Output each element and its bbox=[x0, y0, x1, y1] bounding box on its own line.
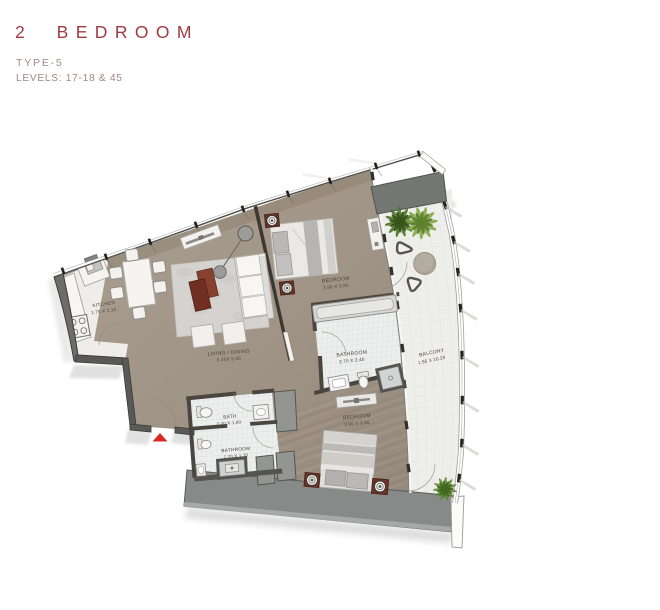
svg-text:2 BEDROOM: 2 BEDROOM bbox=[15, 22, 199, 42]
svg-text:TYPE-5: TYPE-5 bbox=[16, 57, 64, 69]
svg-text:LEVELS: 17-18 & 45: LEVELS: 17-18 & 45 bbox=[16, 73, 123, 84]
